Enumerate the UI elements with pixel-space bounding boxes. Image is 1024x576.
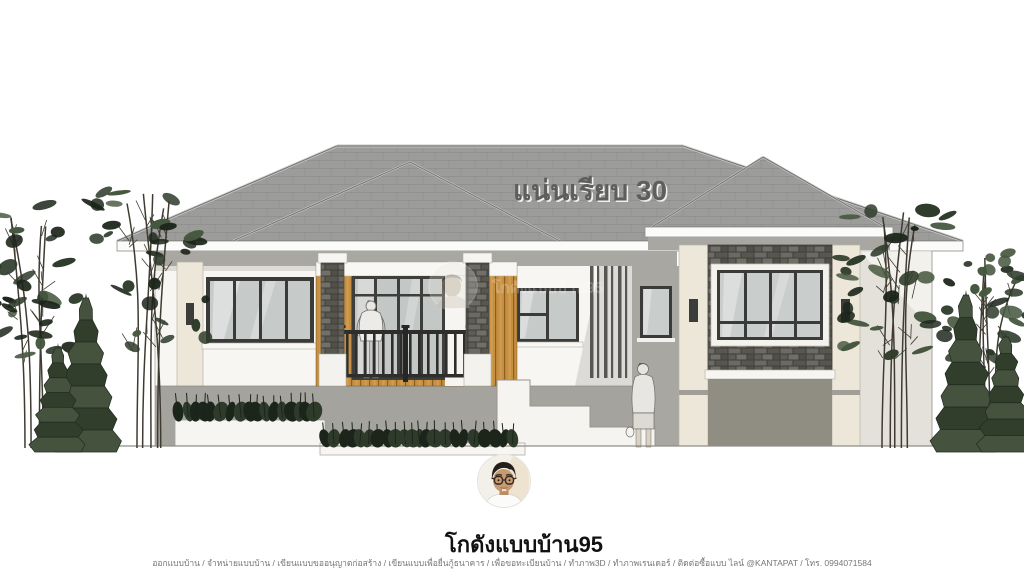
wall-sconce — [689, 299, 698, 322]
planter-box-left — [175, 420, 325, 446]
services-line: ออกแบบบ้าน / จำหน่ายแบบบ้าน / เขียนแบบขอ… — [0, 556, 1024, 570]
porch-column-left — [318, 253, 347, 386]
porch — [316, 253, 517, 386]
house-presentation-image: แน่นเรียบ 30 แน่นเรียบ 30 — [0, 0, 1024, 576]
wing-lower-wall — [708, 379, 832, 446]
left-window — [202, 277, 318, 349]
wing-fascia — [645, 227, 893, 237]
wing-window — [711, 264, 829, 346]
avatar — [477, 454, 531, 508]
wing-sill-band — [705, 370, 835, 379]
svg-text:โกดังแบบบ้าน95: โกดังแบบบ้าน95 — [491, 278, 604, 297]
svg-text:แน่นเรียบ 30: แน่นเรียบ 30 — [513, 175, 667, 206]
window-sill — [202, 343, 318, 349]
small-window — [637, 286, 675, 342]
roof-label: แน่นเรียบ 30 แน่นเรียบ 30 — [513, 175, 669, 208]
wing-pilaster-left — [679, 245, 708, 446]
